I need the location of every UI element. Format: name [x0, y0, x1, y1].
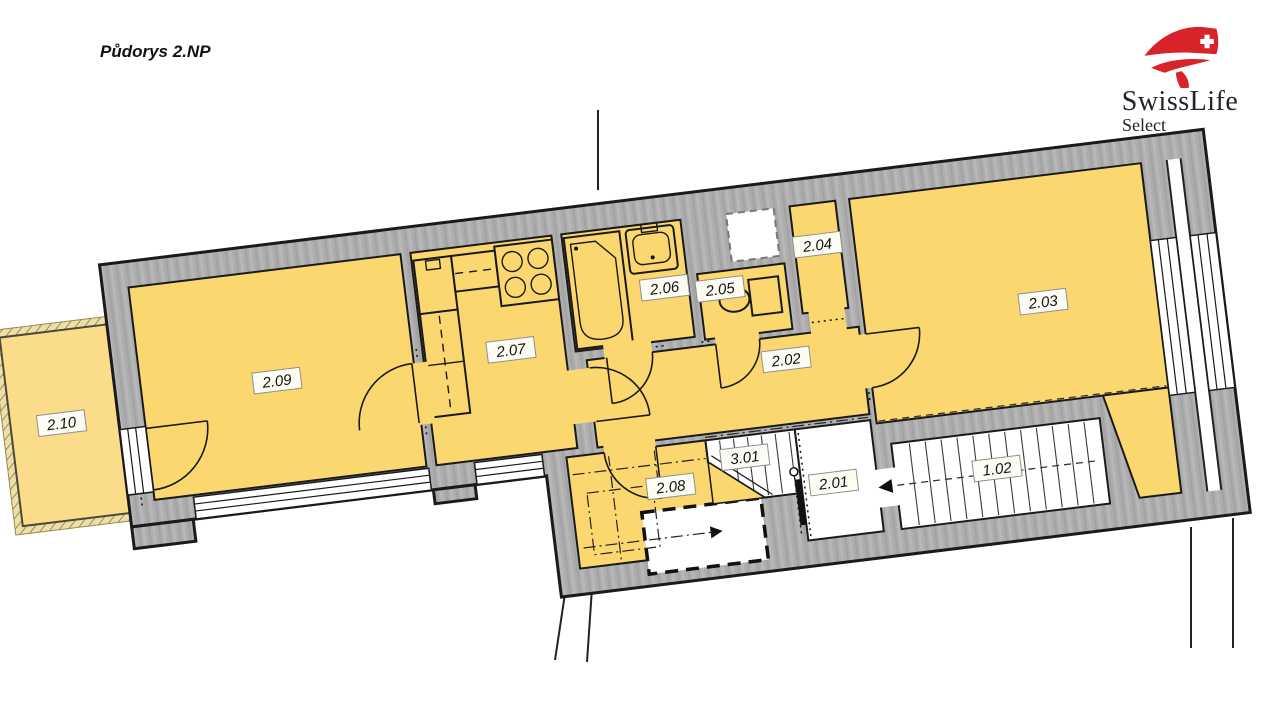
svg-text:3.01: 3.01	[729, 448, 760, 468]
logo-brand-text: SwissLife	[1112, 88, 1248, 116]
pier-bottom-mid	[433, 485, 476, 504]
stove-icon	[494, 240, 559, 307]
logo-sub-text: Select	[1112, 116, 1248, 136]
swisslife-flag-icon	[1137, 22, 1223, 88]
room-2-03-area	[849, 163, 1168, 423]
sink-icon	[625, 221, 678, 274]
stair-start-marker	[789, 467, 798, 476]
svg-text:1.02: 1.02	[982, 459, 1014, 480]
rotated-plan: 2.092.102.072.062.052.042.022.032.083.01…	[0, 129, 1250, 662]
page-title: Půdorys 2.NP	[100, 42, 211, 62]
swisslife-logo: SwissLife Select	[1112, 22, 1248, 136]
floor-plan-drawing: 2.092.102.072.062.052.042.022.032.083.01…	[0, 0, 1278, 705]
light-shaft	[726, 208, 779, 261]
floor-plan-page: Půdorys 2.NP SwissLife Select	[0, 0, 1278, 705]
